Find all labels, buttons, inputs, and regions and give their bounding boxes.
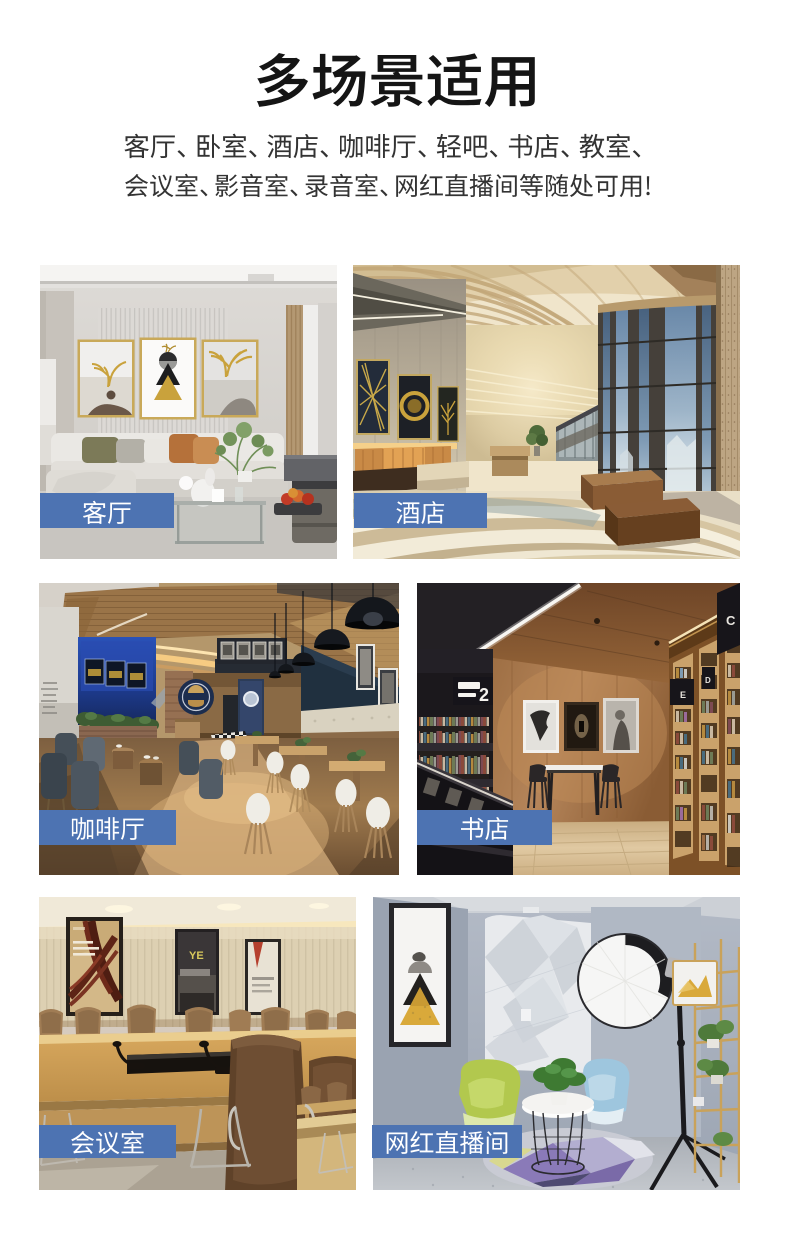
svg-text:D: D: [705, 676, 711, 685]
svg-text:YE: YE: [189, 950, 204, 962]
svg-text:C: C: [726, 613, 736, 628]
svg-text:E: E: [680, 690, 686, 700]
svg-text:2: 2: [479, 685, 489, 705]
